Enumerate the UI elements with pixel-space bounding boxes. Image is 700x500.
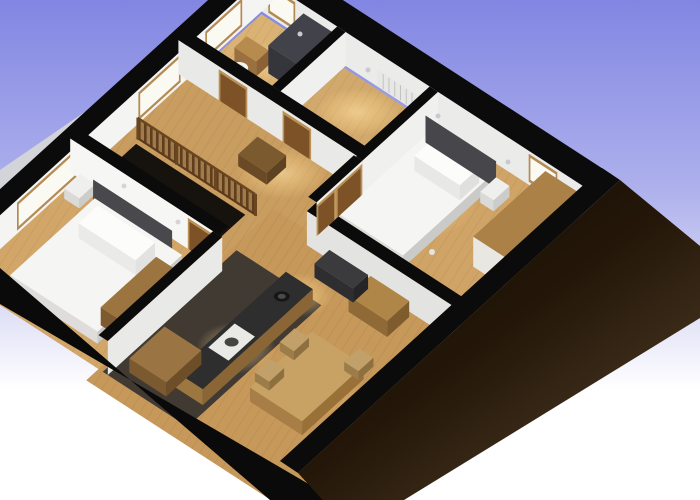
spotlight-dot [176, 220, 181, 225]
scene-root [0, 0, 700, 500]
kitchen-sink-bowl [225, 338, 239, 347]
spotlight-dot [366, 68, 371, 73]
spotlight-dot [122, 184, 127, 189]
stair-railing-post [214, 168, 217, 190]
spotlight-dot [436, 114, 441, 119]
stair-railing-post [175, 143, 178, 165]
floorplan-3d-svg [0, 0, 700, 500]
stair-railing-post [136, 118, 139, 140]
spotlight-dot [506, 160, 511, 165]
stair-railing-post [254, 194, 257, 216]
spotlight-dot [429, 249, 435, 255]
spotlight-dot [298, 32, 303, 37]
stove-burner-ring [278, 294, 286, 299]
floor-plan-render: 3D isometric rendering of an apartment f… [0, 0, 700, 500]
